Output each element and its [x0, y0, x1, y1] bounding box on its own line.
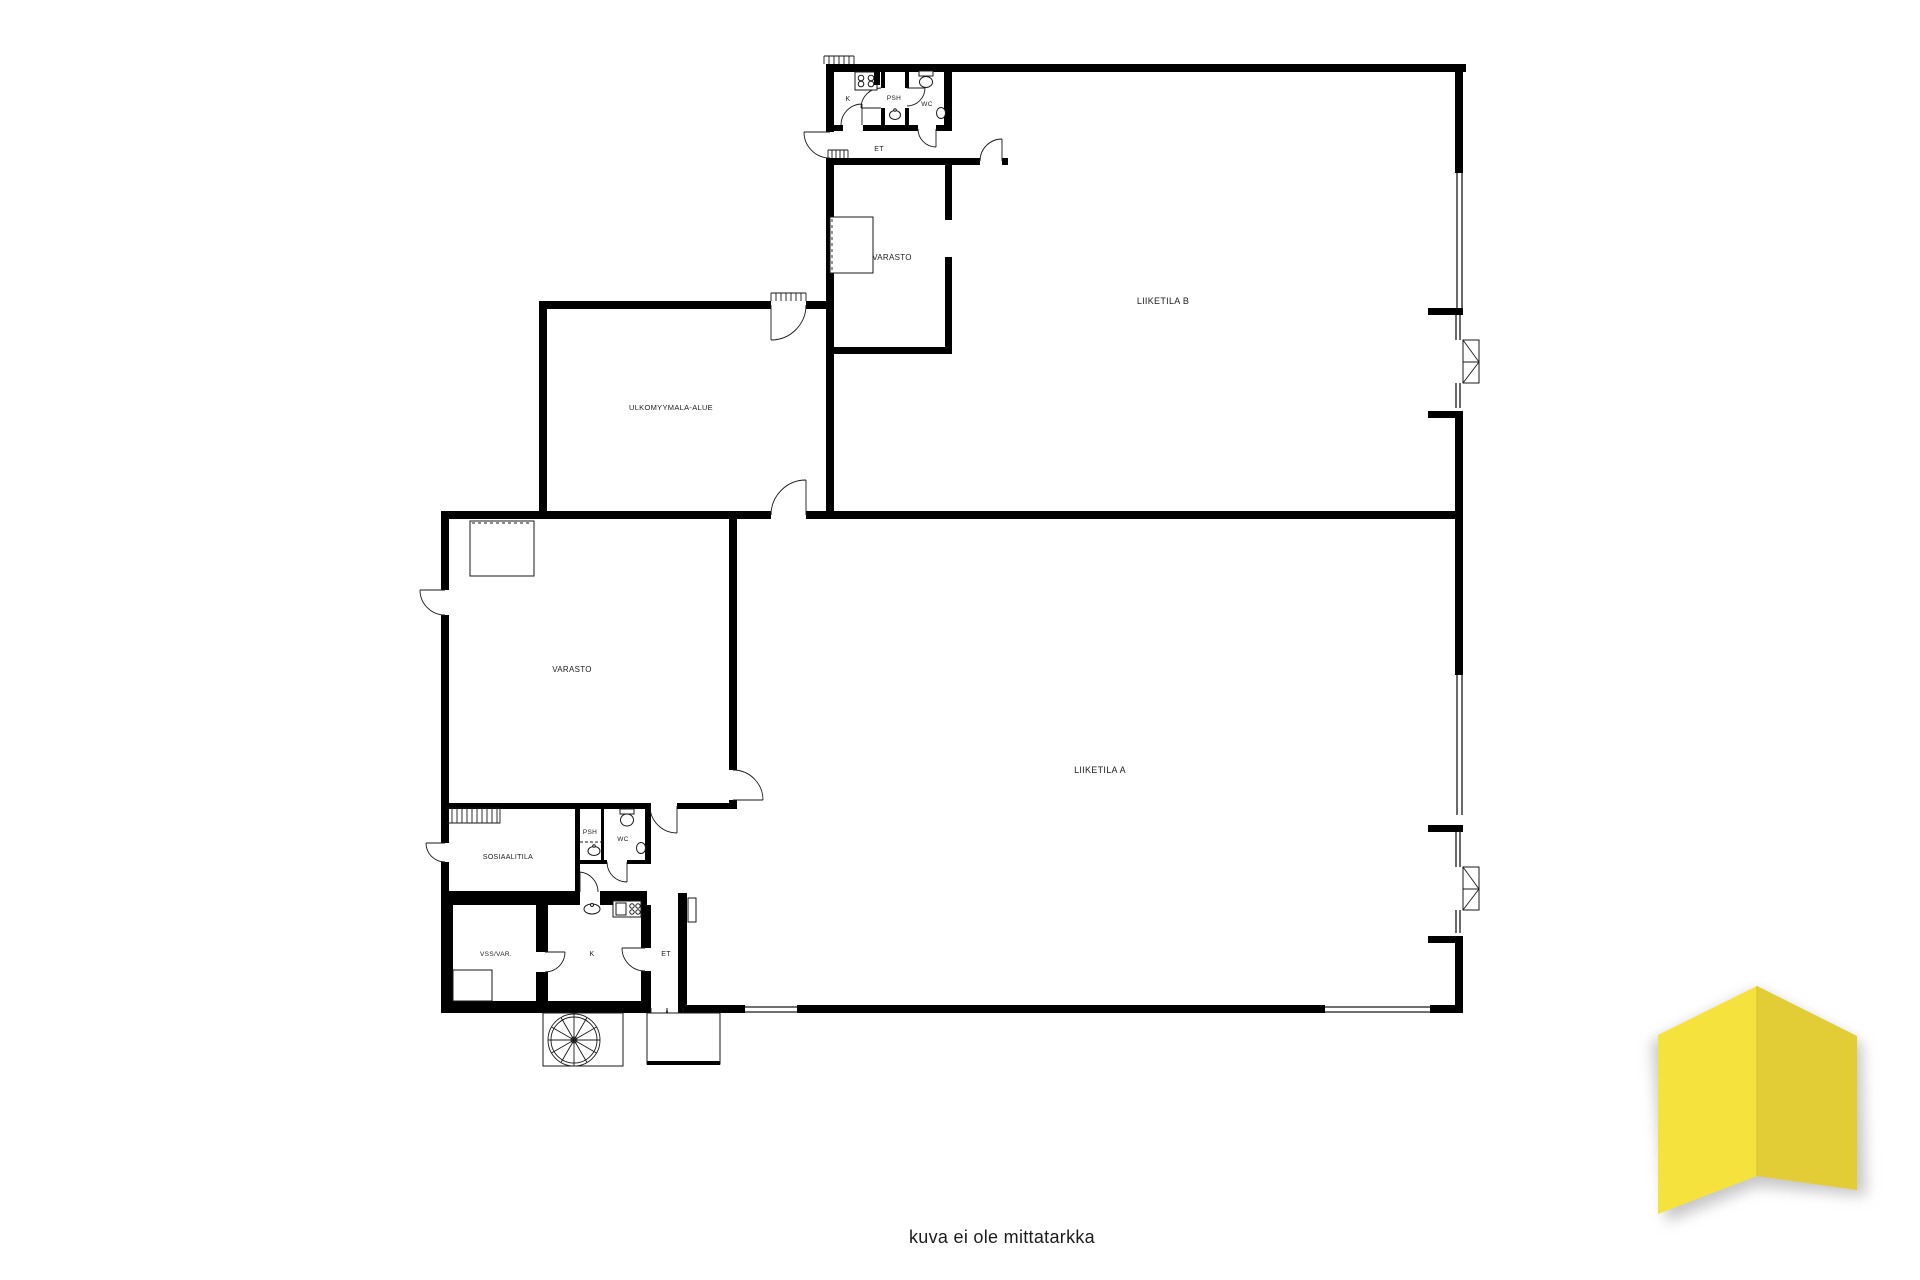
- logo-left-panel: [1658, 986, 1757, 1214]
- room-label-varasto-top: VARASTO: [872, 253, 912, 262]
- door-swing-icon: [771, 305, 806, 340]
- window-icon: [1456, 910, 1460, 933]
- door-swing-icon: [426, 843, 445, 862]
- logo-right-panel: [1757, 986, 1857, 1190]
- room-label-ulkomyymala: ULKOMYYMALA-ALUE: [629, 403, 713, 412]
- floor-marking: [453, 970, 492, 1001]
- step-marks-icon: [771, 293, 806, 301]
- room-label-liiketila-b: LIIKETILA B: [1137, 296, 1189, 306]
- room-label-k-bottom: K: [590, 951, 595, 958]
- storage-rack: [830, 217, 873, 273]
- window-icon: [1457, 173, 1462, 308]
- toilet-icon: [620, 809, 634, 826]
- door-swing-icon: [804, 132, 830, 158]
- room-label-et-bottom: ET: [661, 951, 671, 958]
- caption: kuva ei ole mittatarkka: [909, 1227, 1096, 1247]
- room-label-sosiaalitila: SOSIAALITILA: [483, 854, 533, 861]
- window-icon: [1456, 832, 1460, 867]
- room-label-psh-top: PSH: [887, 95, 901, 102]
- walls: [441, 64, 1466, 1013]
- fixtures: [447, 56, 952, 1066]
- toilet-icon: [919, 71, 933, 88]
- windows: [745, 173, 1462, 1012]
- room-label-k-top: K: [846, 96, 851, 103]
- room-label-wc-bottom: WC: [617, 836, 628, 843]
- window-icon: [1325, 1007, 1430, 1012]
- entrance-landing: [647, 1013, 720, 1065]
- stove-icon: [855, 71, 880, 90]
- room-label-liiketila-a: LIIKETILA A: [1074, 765, 1126, 775]
- door-swing-icon: [580, 872, 598, 892]
- door-swing-icon: [607, 862, 627, 882]
- spiral-staircase-icon: [548, 1014, 600, 1066]
- door-swing-icon: [622, 948, 645, 971]
- door-swing-icon: [861, 88, 881, 108]
- loading-door-lower: [1463, 867, 1479, 910]
- window-icon: [1456, 383, 1460, 408]
- door-swing-icon: [733, 770, 763, 800]
- door-swing-icon: [841, 104, 862, 125]
- duct: [688, 898, 696, 922]
- room-label-psh-bottom: PSH: [583, 829, 597, 836]
- door-swing-icon: [771, 480, 806, 515]
- window-icon: [745, 1007, 797, 1012]
- stove-icon: [613, 901, 641, 917]
- room-label-varasto-left: VARASTO: [552, 665, 592, 674]
- storage-rack: [470, 521, 534, 576]
- sink-icon: [584, 904, 600, 915]
- loading-door-upper: [1463, 340, 1479, 383]
- door-swing-icon: [420, 590, 445, 615]
- floor-plan: LIIKETILA B LIIKETILA A VARASTO ULKOMYYM…: [0, 0, 1920, 1280]
- room-label-vss-var: VSS/VAR.: [480, 951, 512, 958]
- sink-icon: [637, 842, 652, 855]
- door-swing-icon: [545, 952, 565, 972]
- door-swing-icon: [980, 139, 1002, 161]
- sink-icon: [588, 845, 600, 856]
- step-marks-icon: [824, 56, 854, 64]
- step-marks-icon: [828, 150, 848, 158]
- locker-comb-icon: [447, 808, 500, 823]
- window-icon: [1457, 675, 1462, 815]
- room-label-et-top: ET: [874, 146, 884, 153]
- door-swing-icon: [918, 129, 936, 147]
- door-swing-icon: [650, 806, 677, 833]
- window-icon: [1456, 315, 1460, 340]
- company-logo: [1652, 986, 1866, 1222]
- sink-icon: [890, 109, 901, 120]
- room-label-wc-top: WC: [921, 101, 932, 108]
